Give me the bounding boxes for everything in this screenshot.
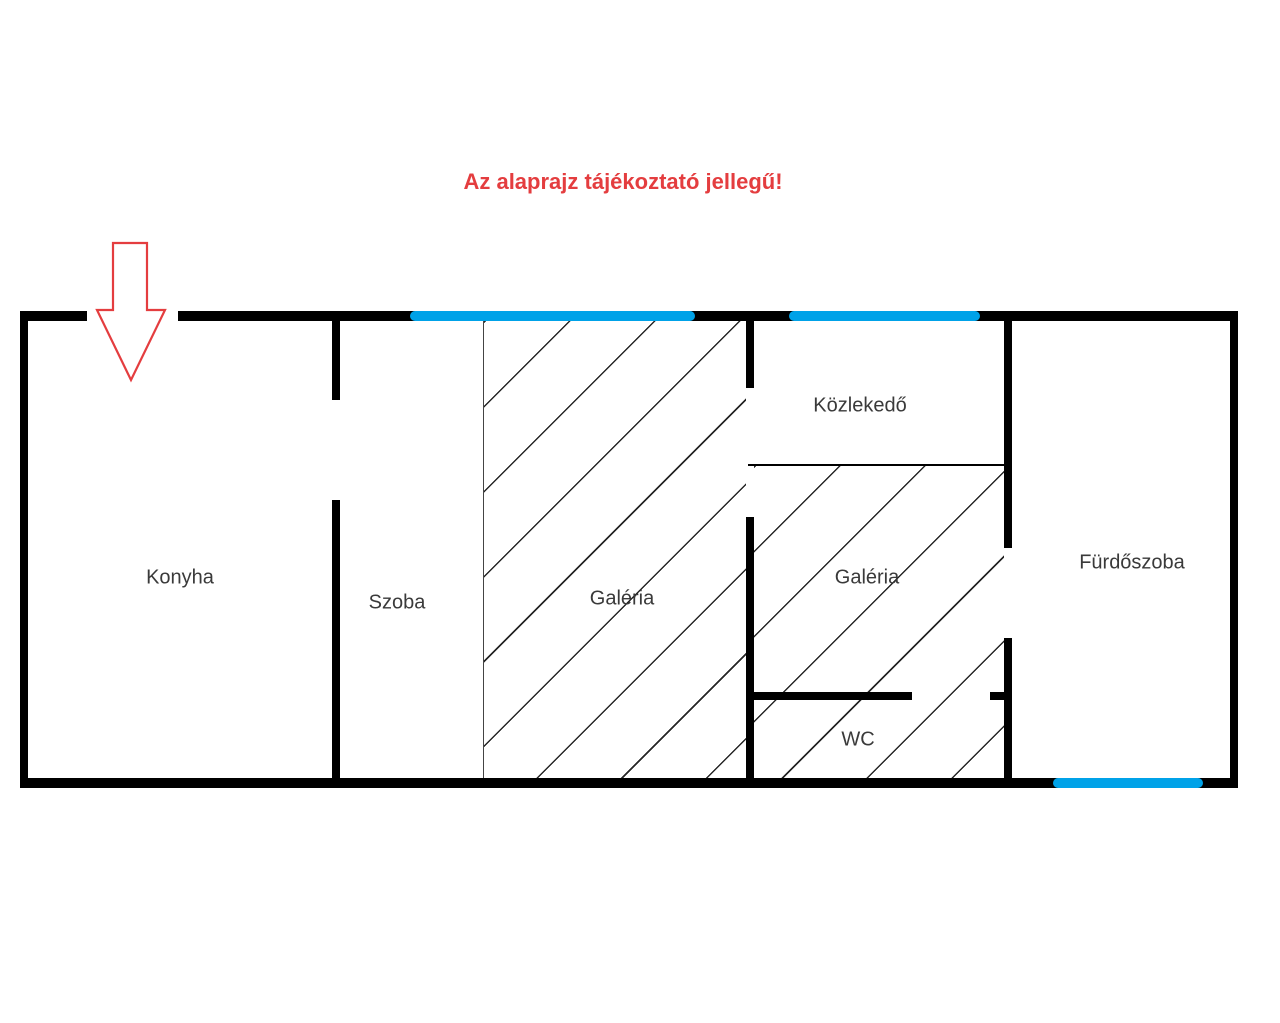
wall-galeria-kozlekedo-lower bbox=[746, 517, 754, 778]
room-label-szoba: Szoba bbox=[369, 592, 426, 615]
wall-wc-tick bbox=[990, 692, 1012, 700]
wall-top-left-of-entrance bbox=[20, 311, 87, 321]
hatch-galeria-nagy bbox=[484, 321, 746, 778]
floorplan-canvas: Az alaprajz tájékoztató jellegű! Konyha … bbox=[0, 0, 1280, 1023]
hatch-galeria-kis-wc bbox=[754, 466, 1004, 778]
wall-wc-top bbox=[746, 692, 912, 700]
partition-kozlekedo-galeria bbox=[748, 464, 1004, 466]
partition-szoba-galeria bbox=[483, 321, 484, 778]
room-label-konyha: Konyha bbox=[146, 567, 214, 590]
entrance-down-arrow-icon bbox=[95, 241, 169, 383]
wall-right bbox=[1230, 311, 1238, 788]
wall-galeria-kozlekedo-upper bbox=[746, 321, 754, 388]
disclaimer-text: Az alaprajz tájékoztató jellegű! bbox=[463, 169, 782, 195]
wall-konyha-szoba-upper bbox=[332, 321, 340, 400]
room-label-galeria-nagy: Galéria bbox=[590, 588, 654, 611]
room-label-furdoszoba: Fürdőszoba bbox=[1079, 552, 1185, 575]
wall-left bbox=[20, 311, 28, 788]
wall-furdoszoba-upper bbox=[1004, 321, 1012, 548]
wall-konyha-szoba-lower bbox=[332, 500, 340, 778]
room-label-wc: WC bbox=[841, 729, 874, 752]
window-top-1 bbox=[410, 311, 695, 321]
wall-top-main bbox=[178, 311, 1238, 321]
room-label-kozlekedo: Közlekedő bbox=[813, 395, 906, 418]
wall-furdoszoba-lower bbox=[1004, 638, 1012, 778]
room-label-galeria-kis: Galéria bbox=[835, 567, 899, 590]
window-top-2 bbox=[789, 311, 980, 321]
window-bottom bbox=[1053, 778, 1203, 788]
